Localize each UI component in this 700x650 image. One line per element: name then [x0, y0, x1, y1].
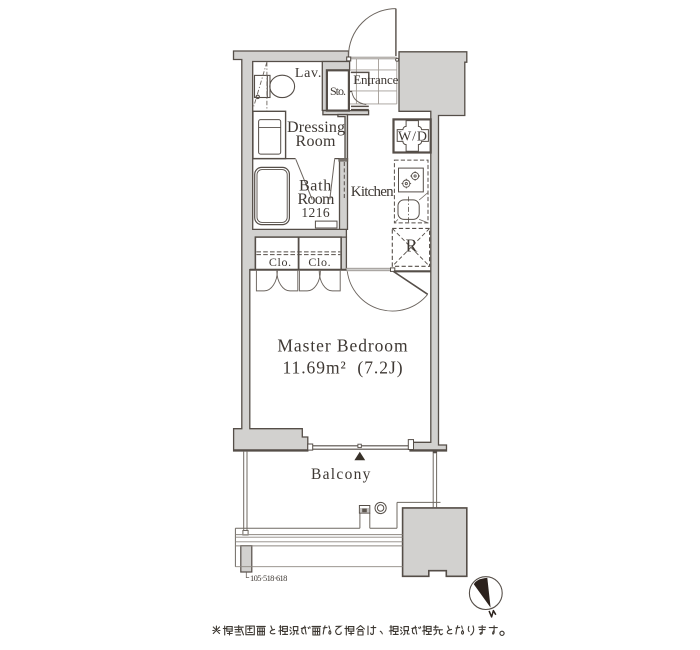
- svg-text:Lav.: Lav.: [295, 66, 322, 81]
- svg-text:Master Bedroom: Master Bedroom: [277, 336, 408, 356]
- svg-text:Room: Room: [296, 133, 337, 150]
- svg-text:R: R: [406, 235, 418, 255]
- svg-text:105·518·618: 105·518·618: [250, 573, 287, 583]
- svg-text:Clo.: Clo.: [308, 255, 330, 269]
- svg-text:1216: 1216: [301, 205, 330, 220]
- svg-text:Clo.: Clo.: [269, 255, 291, 269]
- svg-text:Balcony: Balcony: [311, 466, 371, 483]
- svg-text:Entrance: Entrance: [353, 72, 398, 87]
- svg-text:Kitchen: Kitchen: [351, 184, 394, 200]
- svg-text:Sto.: Sto.: [330, 84, 346, 98]
- svg-text:W/D: W/D: [398, 130, 427, 145]
- svg-text:11.69m² (7.2J): 11.69m² (7.2J): [282, 357, 402, 377]
